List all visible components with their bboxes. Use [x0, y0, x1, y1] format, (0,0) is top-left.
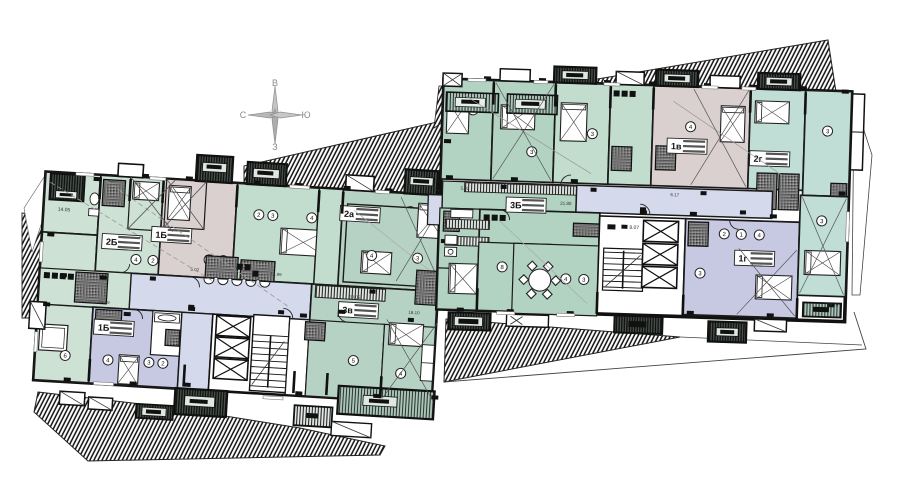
- svg-text:14.99: 14.99: [98, 299, 110, 305]
- svg-text:14.99: 14.99: [790, 194, 802, 199]
- svg-text:18.10: 18.10: [827, 302, 839, 307]
- svg-text:1г: 1г: [738, 253, 747, 263]
- svg-text:14.05: 14.05: [58, 207, 71, 214]
- svg-text:6.17: 6.17: [670, 192, 679, 197]
- svg-text:14.99: 14.99: [270, 271, 282, 277]
- svg-text:1Б: 1Б: [98, 322, 111, 333]
- svg-text:2а: 2а: [344, 209, 356, 220]
- svg-text:1в: 1в: [671, 141, 682, 151]
- svg-text:5.02: 5.02: [190, 267, 200, 273]
- svg-text:8.07: 8.07: [629, 225, 639, 231]
- svg-text:18.10: 18.10: [408, 310, 420, 316]
- svg-text:З: З: [272, 142, 277, 152]
- svg-text:1Б: 1Б: [155, 230, 168, 241]
- svg-text:В: В: [272, 78, 278, 88]
- svg-text:20.05: 20.05: [349, 294, 361, 300]
- svg-text:3Б: 3Б: [510, 200, 522, 210]
- svg-text:2Б: 2Б: [106, 237, 119, 248]
- svg-text:5.02: 5.02: [461, 186, 470, 191]
- svg-text:С: С: [240, 110, 247, 120]
- svg-text:21.80: 21.80: [560, 201, 572, 206]
- svg-text:Ю: Ю: [301, 110, 310, 120]
